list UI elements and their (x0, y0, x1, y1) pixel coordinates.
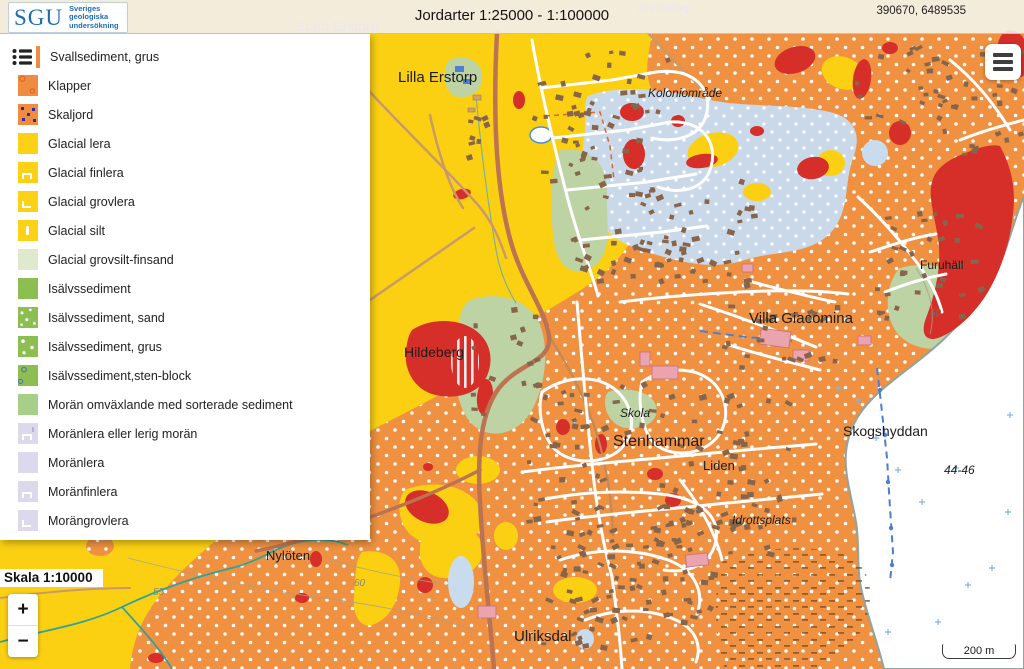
legend-item-label: Isälvssediment, sand (48, 311, 165, 325)
sgu-logo-text: SGU (14, 5, 63, 31)
legend-swatch (18, 104, 38, 125)
zoom-in-button[interactable]: + (8, 594, 38, 625)
zoom-out-button[interactable]: − (8, 626, 38, 657)
legend-item-label: Moränlera (48, 456, 104, 470)
legend-swatch (18, 510, 38, 531)
legend-swatch (18, 452, 38, 473)
top-bar: SGU Sveriges geologiska undersökning Jor… (0, 0, 1024, 34)
map-label: Nylöten (266, 548, 310, 563)
legend-item: Moränfinlera (0, 477, 370, 506)
hamburger-icon (993, 60, 1013, 63)
scale-label: Skala 1:10000 (0, 569, 103, 587)
legend-item: Morängrovlera (0, 506, 370, 535)
legend-item: Isälvssediment (0, 274, 370, 303)
zoom-controls: + − (8, 594, 38, 657)
legend-item-label: Isälvssediment, grus (48, 340, 162, 354)
legend-item: Isälvssediment, sand (0, 303, 370, 332)
map-label: Skola (620, 406, 650, 420)
map-label: Lilla Erstorp (398, 69, 477, 86)
menu-button[interactable] (985, 44, 1021, 80)
legend-item-label: Moränfinlera (48, 485, 117, 499)
sgu-logo-tagline: Sveriges geologiska undersökning (69, 5, 119, 30)
map-label: 55 (153, 587, 165, 598)
legend-swatch (18, 75, 38, 96)
legend-swatch (18, 162, 38, 183)
legend-item-label: Skaljord (48, 108, 93, 122)
legend-item-label: Glacial finlera (48, 166, 124, 180)
hamburger-icon (993, 67, 1013, 70)
legend-item-label: Glacial grovlera (48, 195, 135, 209)
legend-swatch (18, 249, 38, 270)
legend-swatch (18, 307, 38, 328)
legend-rows: Svallsediment, grusKlapperSkaljordGlacia… (0, 42, 370, 535)
legend-swatch (18, 365, 38, 386)
legend-item: Glacial finlera (0, 158, 370, 187)
map-label: Skogshyddan (843, 423, 928, 439)
map-label: Liden (703, 458, 735, 473)
legend-item-label: Morän omväxlande med sorterade sediment (48, 398, 293, 412)
legend-item-label: Klapper (48, 79, 91, 93)
map-label: 44-46 (944, 463, 975, 477)
map-label: 60 (354, 578, 366, 589)
legend-item-label: Glacial silt (48, 224, 105, 238)
legend-item: Glacial silt (0, 216, 370, 245)
legend-item: Svallsediment, grus (0, 42, 370, 71)
legend-item-label: Moränlera eller lerig morän (48, 427, 197, 441)
map-label: Hildeberg (404, 344, 464, 360)
scale-bar: 200 m (942, 644, 1016, 659)
legend-panel: Svallsediment, grusKlapperSkaljordGlacia… (0, 33, 370, 540)
legend-item-label: Morängrovlera (48, 514, 129, 528)
legend-item-label: Isälvssediment (48, 282, 131, 296)
legend-item-label: Glacial lera (48, 137, 111, 151)
legend-list-icon[interactable] (12, 47, 34, 67)
map-label: Stenhammar (613, 433, 705, 450)
map-label: 50 (930, 308, 942, 319)
map-label: Villa Giacomina (749, 310, 854, 327)
legend-item-label: Svallsediment, grus (50, 50, 159, 64)
legend-item: Skaljord (0, 100, 370, 129)
page-title: Jordarter 1:25000 - 1:100000 (0, 7, 1024, 24)
map-label: Ulriksdal (514, 628, 572, 645)
legend-item-label: Isälvssediment,sten-block (48, 369, 191, 383)
map-app: Stora ErstorpArvidstorpLilla ErstorpKolo… (0, 0, 1024, 669)
legend-item: Glacial grovlera (0, 187, 370, 216)
legend-swatch (18, 278, 38, 299)
legend-swatch (18, 394, 38, 415)
legend-swatch (18, 481, 38, 502)
legend-item-label: Glacial grovsilt-finsand (48, 253, 174, 267)
legend-item: Glacial lera (0, 129, 370, 158)
legend-swatch (36, 46, 40, 68)
legend-item: Morän omväxlande med sorterade sediment (0, 390, 370, 419)
map-label: Idrottsplats (732, 513, 791, 527)
sgu-logo[interactable]: SGU Sveriges geologiska undersökning (8, 2, 128, 33)
legend-item: Isälvssediment, grus (0, 332, 370, 361)
legend-item: Glacial grovsilt-finsand (0, 245, 370, 274)
coordinate-readout: 390670, 6489535 (876, 5, 966, 17)
map-label: Furuhäll (920, 258, 963, 272)
legend-item: Klapper (0, 71, 370, 100)
legend-swatch (18, 336, 38, 357)
legend-item: Isälvssediment,sten-block (0, 361, 370, 390)
legend-swatch (18, 133, 38, 154)
map-label: Koloniområde (648, 86, 722, 100)
legend-swatch (18, 191, 38, 212)
legend-swatch (18, 423, 38, 444)
legend-item: Moränlera eller lerig morän (0, 419, 370, 448)
legend-item: Moränlera (0, 448, 370, 477)
legend-swatch (18, 220, 38, 241)
hamburger-icon (993, 53, 1013, 56)
